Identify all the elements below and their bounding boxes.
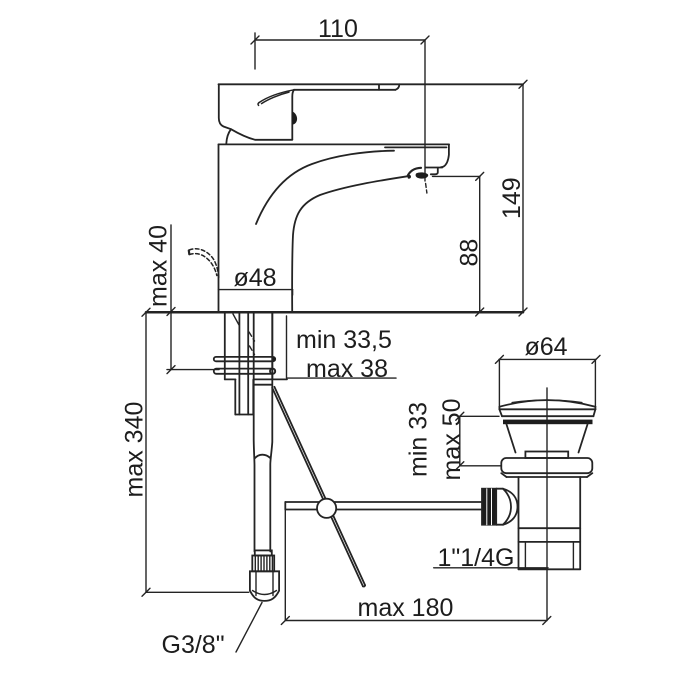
svg-text:max 180: max 180: [358, 594, 454, 622]
svg-text:110: 110: [318, 15, 358, 43]
svg-text:max 50: max 50: [438, 399, 466, 481]
svg-text:min 33,5: min 33,5: [296, 326, 392, 354]
svg-text:G3/8": G3/8": [162, 631, 225, 659]
svg-text:ø64: ø64: [525, 333, 568, 361]
svg-text:max 40: max 40: [145, 225, 173, 307]
svg-text:ø48: ø48: [234, 264, 277, 292]
svg-text:max 340: max 340: [121, 402, 149, 498]
svg-text:149: 149: [498, 177, 526, 219]
svg-text:min 33: min 33: [405, 402, 433, 477]
